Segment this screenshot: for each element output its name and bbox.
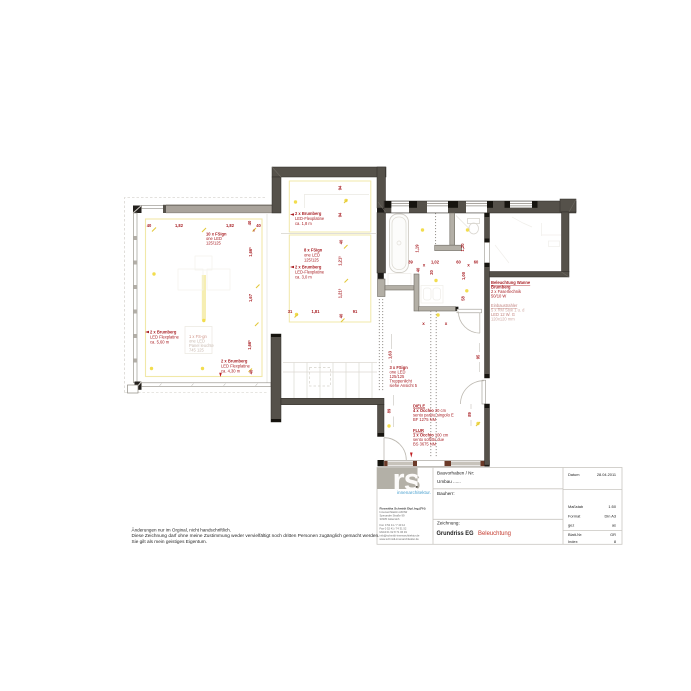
svg-text:8: 8 <box>614 539 616 544</box>
svg-text:BF 1275 NM: BF 1275 NM <box>413 417 437 422</box>
svg-text:info@schmidt-innenarchitektur.: info@schmidt-innenarchitektur.de <box>380 534 420 538</box>
svg-text:1,63: 1,63 <box>388 350 393 359</box>
svg-text:40: 40 <box>339 239 344 244</box>
svg-text:x: x <box>423 263 426 268</box>
svg-text:Diese Zeichnung darf ohne mein: Diese Zeichnung darf ohne meine Zustimmu… <box>132 533 380 538</box>
svg-text:Mobil 01 62 8 71 06 49: Mobil 01 62 8 71 06 49 <box>380 530 408 534</box>
svg-text:Format: Format <box>568 514 581 519</box>
svg-text:95: 95 <box>476 354 481 359</box>
svg-text:Roswitha Schmidt Dipl.Ing.(FH): Roswitha Schmidt Dipl.Ing.(FH) <box>380 507 426 511</box>
svg-text:Spexarder Straße 99: Spexarder Straße 99 <box>380 514 405 518</box>
svg-text:1,19: 1,19 <box>415 244 420 253</box>
svg-text:40: 40 <box>339 313 344 318</box>
svg-text:1:50: 1:50 <box>608 504 616 509</box>
svg-text:Din A3: Din A3 <box>605 514 616 519</box>
svg-text:ca. 4,30 m: ca. 4,30 m <box>221 369 241 374</box>
svg-text:Innenarchitektin AKNW: Innenarchitektin AKNW <box>380 510 408 514</box>
svg-text:60: 60 <box>474 260 479 265</box>
svg-text:745 125: 745 125 <box>189 348 205 353</box>
svg-text:Beleuchtung: Beleuchtung <box>478 530 511 537</box>
svg-text:39: 39 <box>408 260 413 265</box>
svg-text:1,67: 1,67 <box>248 293 253 302</box>
svg-text:40: 40 <box>256 223 261 228</box>
svg-text:GR: GR <box>610 532 616 537</box>
svg-text:89: 89 <box>387 408 392 413</box>
svg-text:x: x <box>422 321 425 326</box>
svg-text:Bauvorhaben / Nr:: Bauvorhaben / Nr: <box>437 471 474 476</box>
svg-text:ca. 5,60 m: ca. 5,60 m <box>150 340 170 345</box>
svg-text:Änderungen nur im Orginal, nic: Änderungen nur im Orginal, nicht handsch… <box>132 527 232 532</box>
svg-text:28.04.2011: 28.04.2011 <box>597 472 616 477</box>
svg-text:20: 20 <box>429 270 434 275</box>
svg-text:www.schmidt-innenarchitektur.d: www.schmidt-innenarchitektur.de <box>380 537 420 541</box>
svg-text:x: x <box>253 229 255 233</box>
svg-text:1,20: 1,20 <box>460 243 465 252</box>
svg-text:50/10 W: 50/10 W <box>491 294 506 299</box>
svg-text:125/125: 125/125 <box>206 240 222 245</box>
svg-text:94: 94 <box>338 212 343 217</box>
svg-text:BS 3675 NM: BS 3675 NM <box>413 441 437 446</box>
svg-text:Fon 0 52 41 / 7 43 12: Fon 0 52 41 / 7 43 12 <box>380 523 406 527</box>
svg-text:31: 31 <box>288 309 293 314</box>
svg-text:Umbau ......: Umbau ...... <box>437 479 461 484</box>
svg-text:94: 94 <box>338 185 343 190</box>
svg-text:Maßstab: Maßstab <box>568 504 583 509</box>
svg-text:Blatt-Nr:: Blatt-Nr: <box>568 532 582 537</box>
svg-text:Index: Index <box>568 539 578 544</box>
svg-text:89: 89 <box>467 412 472 417</box>
svg-text:125/125: 125/125 <box>304 258 320 263</box>
svg-text:as: as <box>612 523 616 528</box>
svg-text:ca. 3,0 m: ca. 3,0 m <box>295 275 312 280</box>
svg-text:innenarchitektur.: innenarchitektur. <box>397 490 431 496</box>
svg-text:91: 91 <box>353 309 358 314</box>
svg-text:40: 40 <box>147 223 152 228</box>
svg-text:ca. 1,8 m: ca. 1,8 m <box>295 221 312 226</box>
svg-text:40: 40 <box>249 369 254 374</box>
svg-text:Sie gilt als mein geistiges Ei: Sie gilt als mein geistiges Eigentum. <box>132 539 208 544</box>
svg-text:33335 Gütersloh: 33335 Gütersloh <box>380 517 400 521</box>
svg-text:Zeichnung:: Zeichnung: <box>437 520 460 525</box>
svg-text:Bauherr:: Bauherr: <box>437 491 455 496</box>
svg-text:58: 58 <box>461 296 466 301</box>
svg-text:x: x <box>445 321 448 326</box>
svg-text:Fax 0 52 41 / 74 31 52: Fax 0 52 41 / 74 31 52 <box>380 527 407 531</box>
svg-text:x: x <box>467 263 470 268</box>
svg-text:1,00: 1,00 <box>461 271 466 280</box>
svg-text:1,81: 1,81 <box>312 309 321 314</box>
svg-text:60: 60 <box>456 260 461 265</box>
svg-text:40: 40 <box>416 267 421 272</box>
svg-text:1,82: 1,82 <box>175 223 184 228</box>
svg-text:siehe Ansicht 5: siehe Ansicht 5 <box>390 383 418 388</box>
svg-text:1,82: 1,82 <box>226 223 235 228</box>
svg-text:120x120 mm: 120x120 mm <box>491 317 515 322</box>
svg-text:1,02: 1,02 <box>431 260 440 265</box>
svg-text:Datum: Datum <box>568 472 579 477</box>
svg-text:Grundriss EG: Grundriss EG <box>437 530 474 537</box>
svg-text:gez: gez <box>568 523 574 528</box>
svg-text:40: 40 <box>247 220 252 225</box>
